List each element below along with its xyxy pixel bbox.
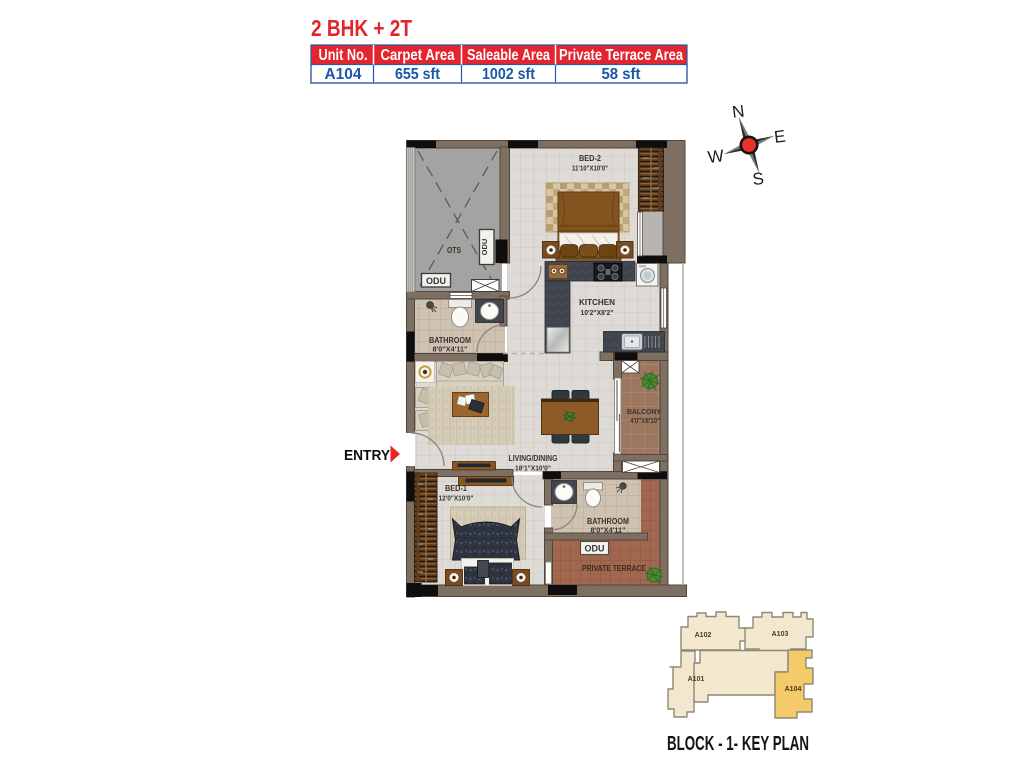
svg-text:ODU: ODU: [426, 276, 446, 286]
svg-text:A103: A103: [772, 631, 789, 638]
svg-text:655 sft: 655 sft: [395, 66, 440, 83]
svg-text:PRIVATE TERRACE: PRIVATE TERRACE: [582, 563, 646, 573]
svg-text:ODU: ODU: [585, 544, 605, 554]
svg-text:Saleable Area: Saleable Area: [467, 47, 550, 64]
svg-text:OTS: OTS: [447, 245, 461, 255]
svg-text:W: W: [707, 146, 725, 167]
svg-text:BLOCK - 1- KEY PLAN: BLOCK - 1- KEY PLAN: [667, 732, 809, 755]
svg-text:E: E: [773, 127, 787, 147]
svg-text:A101: A101: [688, 676, 705, 683]
svg-text:KITCHEN: KITCHEN: [579, 297, 615, 307]
svg-text:A104: A104: [785, 686, 802, 693]
svg-text:A104: A104: [325, 66, 362, 83]
svg-text:Carpet Area: Carpet Area: [381, 47, 455, 64]
svg-text:LIVING/DINING: LIVING/DINING: [509, 453, 558, 463]
svg-text:S: S: [751, 169, 765, 189]
svg-text:Private Terrace Area: Private Terrace Area: [559, 47, 683, 64]
svg-text:BED-2: BED-2: [579, 153, 601, 163]
svg-text:11'10"X10'0": 11'10"X10'0": [572, 164, 608, 173]
svg-text:1002 sft: 1002 sft: [482, 66, 535, 83]
svg-text:8'0"X4'11": 8'0"X4'11": [433, 347, 468, 354]
svg-text:ODU: ODU: [480, 239, 489, 256]
svg-text:2 BHK + 2T: 2 BHK + 2T: [311, 15, 412, 41]
svg-text:ENTRY: ENTRY: [344, 448, 390, 464]
svg-text:A102: A102: [695, 632, 712, 639]
svg-text:Unit No.: Unit No.: [319, 47, 368, 64]
svg-text:BED-1: BED-1: [445, 483, 467, 493]
svg-text:BALCONY: BALCONY: [627, 407, 661, 416]
svg-text:8'0"X4'11": 8'0"X4'11": [591, 528, 626, 535]
svg-text:18'1"X10'0": 18'1"X10'0": [515, 464, 551, 473]
svg-text:12'0"X10'0": 12'0"X10'0": [439, 494, 474, 503]
svg-text:58 sft: 58 sft: [602, 66, 641, 83]
svg-text:N: N: [731, 101, 746, 121]
svg-text:BATHROOM: BATHROOM: [429, 336, 471, 345]
svg-text:BATHROOM: BATHROOM: [587, 517, 629, 526]
svg-text:10'2"X8'2": 10'2"X8'2": [581, 308, 614, 317]
svg-text:4'0"X8'10": 4'0"X8'10": [630, 418, 660, 425]
